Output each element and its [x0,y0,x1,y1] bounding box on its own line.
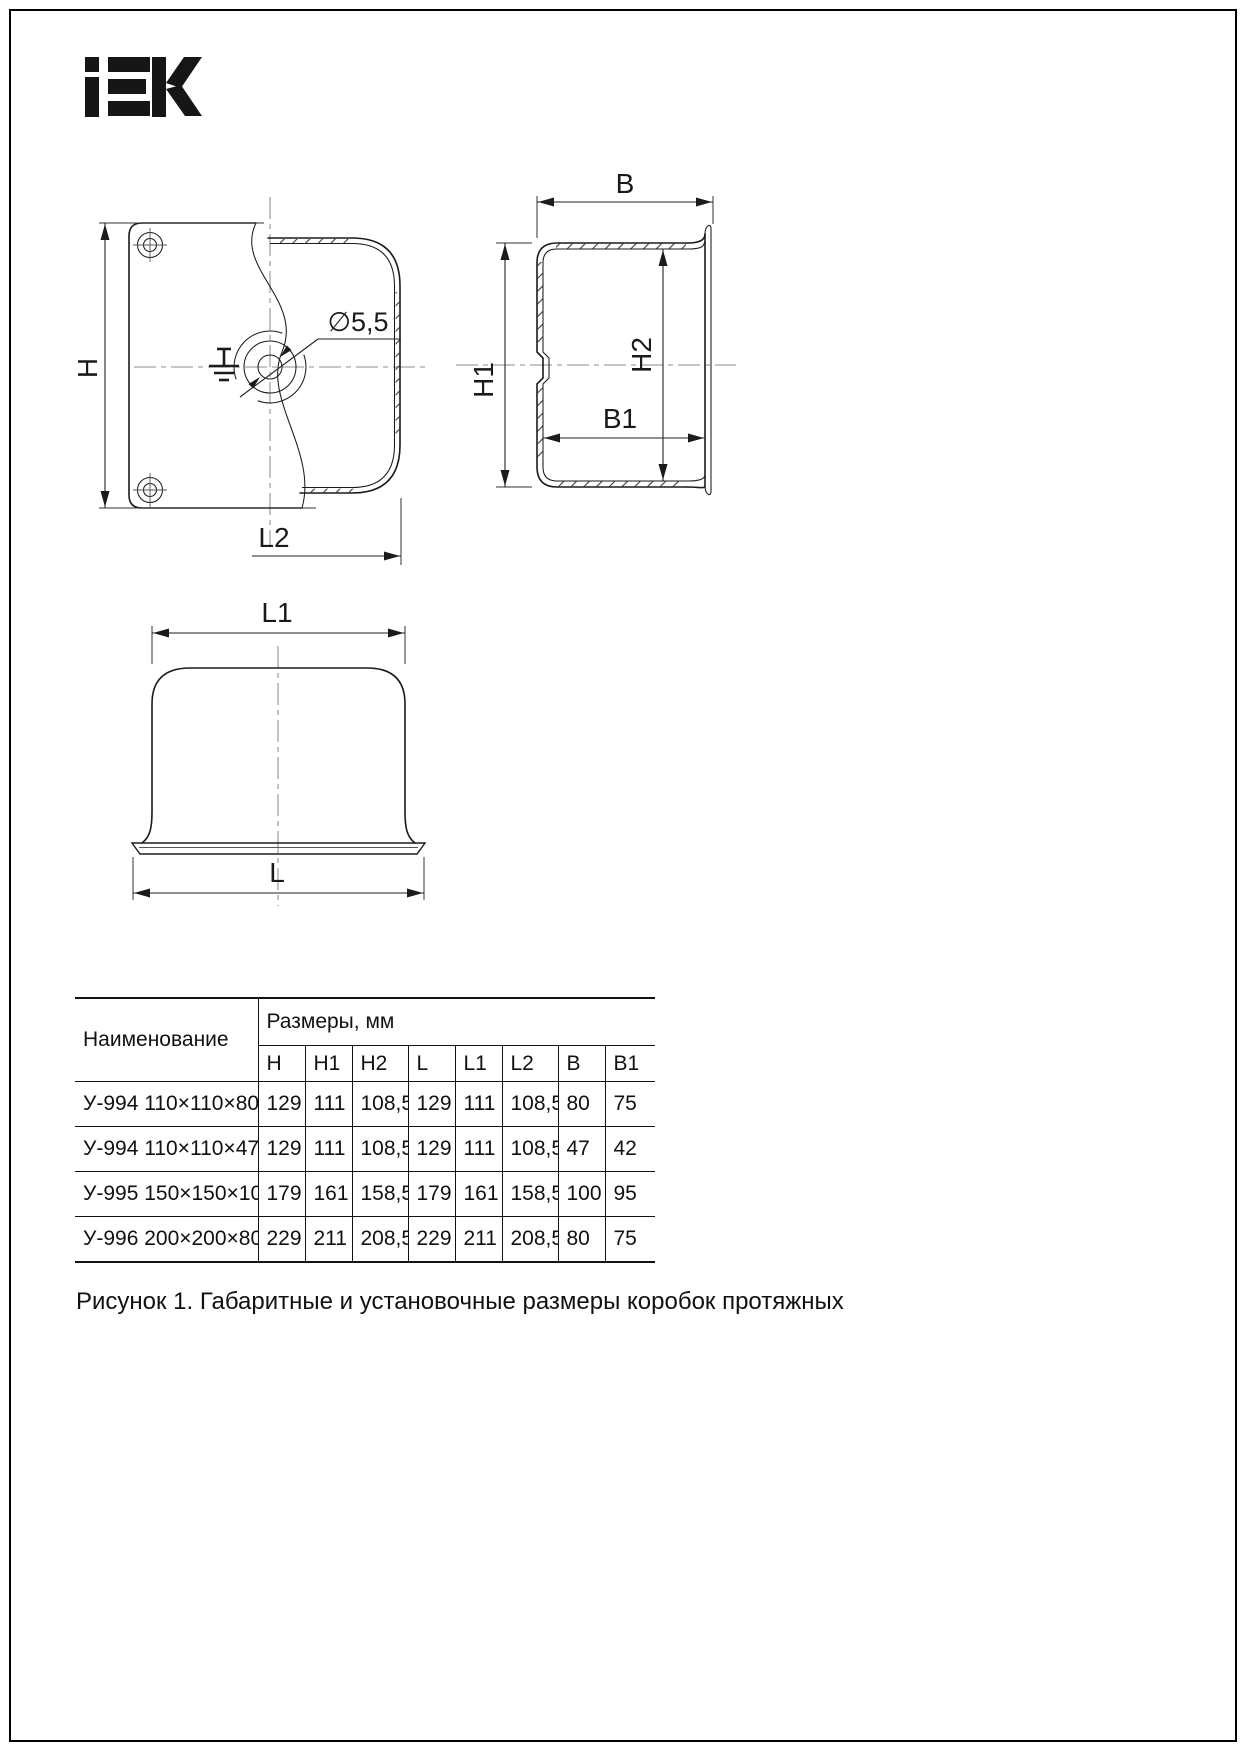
bottom-view-drawing: L1 L [132,597,425,906]
table-row: У-994 110×110×47 129 111 108,5 129 111 1… [75,1127,655,1172]
catalog-page: ∅5,5 H L2 [0,0,1246,1751]
table-header-dim: L [408,1046,455,1082]
hole-diameter-label: ∅5,5 [327,307,388,337]
front-view-drawing: ∅5,5 H L2 [72,197,426,565]
table-row: У-995 150×150×100 179 161 158,5 179 161 … [75,1172,655,1217]
table-cell: 42 [605,1127,655,1172]
table-cell: 111 [305,1127,352,1172]
box-body-inner [270,244,395,488]
product-name-cell: У-994 110×110×80 [75,1082,258,1127]
table-cell: 161 [455,1172,502,1217]
table-row: У-996 200×200×80 229 211 208,5 229 211 2… [75,1217,655,1263]
side-view-drawing: B H1 H2 B1 [456,168,736,495]
product-name-cell: У-995 150×150×100 [75,1172,258,1217]
table-header-dim: L2 [502,1046,558,1082]
table-cell: 208,5 [502,1217,558,1263]
dim-label-h: H [72,358,103,378]
table-cell: 75 [605,1082,655,1127]
table-header-dim: H [258,1046,305,1082]
table-cell: 158,5 [352,1172,408,1217]
table-row: У-994 110×110×80 129 111 108,5 129 111 1… [75,1082,655,1127]
break-line [252,223,305,508]
dim-label-l2: L2 [258,522,289,553]
wall-hatch [556,481,686,486]
table-cell: 111 [455,1127,502,1172]
box-body-outer [268,238,400,493]
dimension-b: B [537,168,713,238]
table-cell: 129 [258,1127,305,1172]
table-cell: 129 [258,1082,305,1127]
table-header-dim: L1 [455,1046,502,1082]
product-name-cell: У-996 200×200×80 [75,1217,258,1263]
dim-label-b: B [616,168,635,199]
table-header-sizes-group: Размеры, мм [258,998,655,1046]
dimension-b1: B1 [543,403,705,443]
table-cell: 108,5 [502,1082,558,1127]
wall-hatch [556,244,686,249]
table-cell: 100 [558,1172,605,1217]
screw-icon [133,228,167,262]
table-cell: 108,5 [502,1127,558,1172]
table-cell: 111 [305,1082,352,1127]
table-cell: 179 [408,1172,455,1217]
table-cell: 80 [558,1217,605,1263]
table-cell: 129 [408,1127,455,1172]
wall-hatch [272,239,352,243]
dim-label-l: L [269,857,285,888]
table-cell: 211 [305,1217,352,1263]
product-name-cell: У-994 110×110×47 [75,1127,258,1172]
table-cell: 229 [408,1217,455,1263]
table-header-name: Наименование [75,998,258,1082]
flange-profile [688,225,711,494]
screw-icon [133,473,167,507]
table-cell: 75 [605,1217,655,1263]
technical-drawings: ∅5,5 H L2 [0,0,1246,960]
dimension-h: H [72,223,316,508]
table-cell: 158,5 [502,1172,558,1217]
figure-caption: Рисунок 1. Габаритные и установочные раз… [76,1288,844,1316]
table-header-dim: H1 [305,1046,352,1082]
table-cell: 80 [558,1082,605,1127]
table-cell: 108,5 [352,1127,408,1172]
table-header-dim: H2 [352,1046,408,1082]
table-cell: 161 [305,1172,352,1217]
table-cell: 108,5 [352,1082,408,1127]
table-cell: 179 [258,1172,305,1217]
dimension-l: L [133,857,424,900]
table-header-dim: B1 [605,1046,655,1082]
dim-label-b1: B1 [603,403,637,434]
dim-label-l1: L1 [261,597,292,628]
wall-hatch [396,292,400,438]
dimensions-table: Наименование Размеры, мм H H1 H2 L L1 L2… [75,997,655,1263]
table-cell: 208,5 [352,1217,408,1263]
wall-hatch [538,388,543,464]
wall-hatch [538,262,543,348]
table-cell: 47 [558,1127,605,1172]
table-cell: 211 [455,1217,502,1263]
table-cell: 229 [258,1217,305,1263]
dim-label-h1: H1 [468,362,499,398]
table-cell: 111 [455,1082,502,1127]
wall-hatch [304,489,356,493]
table-cell: 129 [408,1082,455,1127]
dim-label-h2: H2 [626,337,657,373]
hole-diameter-callout: ∅5,5 [240,307,401,397]
table-cell: 95 [605,1172,655,1217]
table-header-dim: B [558,1046,605,1082]
